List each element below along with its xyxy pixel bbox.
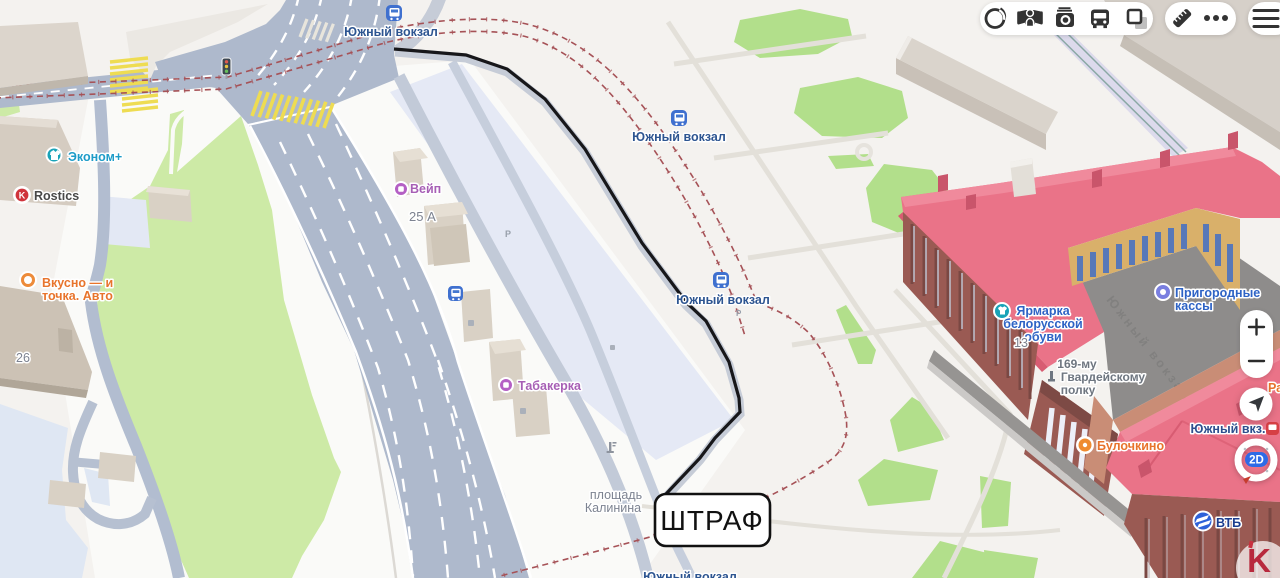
svg-text:2D: 2D xyxy=(1249,455,1264,467)
